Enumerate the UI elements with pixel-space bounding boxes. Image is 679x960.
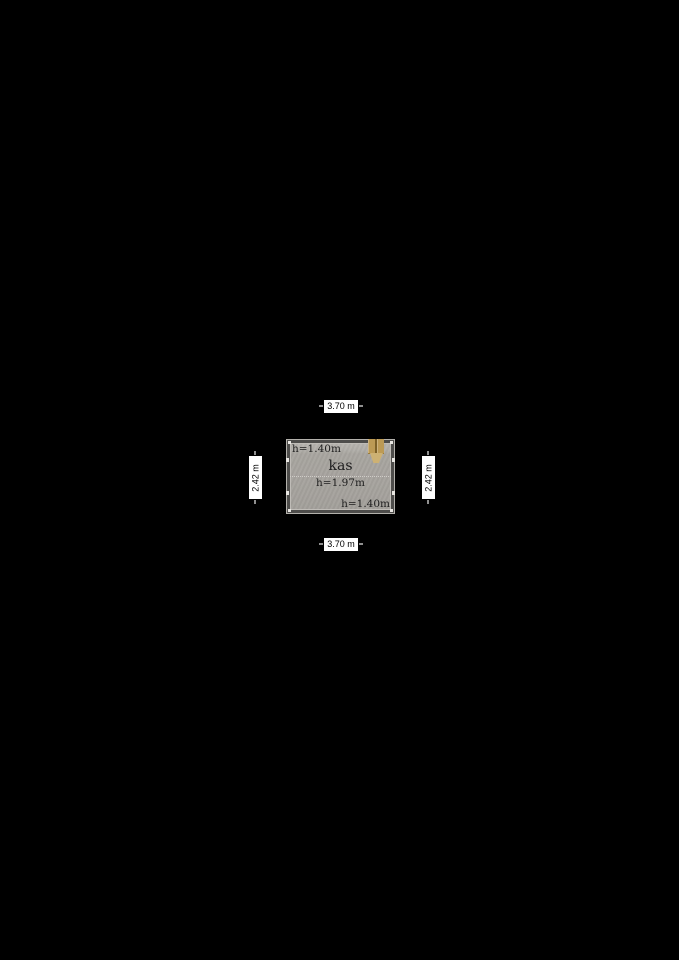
wall-tick bbox=[390, 441, 393, 444]
wall-tick bbox=[286, 458, 289, 462]
ridge-height-label: h=1.97m bbox=[290, 477, 391, 489]
door-leaf-icon bbox=[377, 439, 384, 454]
dimension-label-left: 2.42 m bbox=[249, 456, 262, 499]
dimension-label-bottom: 3.70 m bbox=[324, 538, 358, 551]
wall-tick bbox=[392, 491, 395, 495]
eave-height-label-top: h=1.40m bbox=[292, 443, 341, 455]
door-swing bbox=[370, 453, 383, 463]
wall-tick bbox=[288, 509, 291, 512]
door-gap bbox=[375, 439, 377, 454]
dimension-label-right-text: 2.42 m bbox=[422, 456, 435, 499]
dimension-label-left-text: 2.42 m bbox=[249, 456, 262, 499]
wall-tick bbox=[390, 509, 393, 512]
floor-plan-page: 3.70 m 3.70 m 2.42 m 2.42 m h=1.40m kas … bbox=[0, 0, 679, 960]
wall-tick bbox=[392, 458, 395, 462]
greenhouse-room: h=1.40m kas h=1.97m h=1.40m bbox=[287, 440, 394, 513]
eave-height-label-bottom: h=1.40m bbox=[341, 498, 390, 510]
door-icon bbox=[367, 439, 386, 463]
dimension-label-right: 2.42 m bbox=[422, 456, 435, 499]
wall-tick bbox=[288, 441, 291, 444]
dimension-label-top: 3.70 m bbox=[324, 400, 358, 413]
door-leaf-icon bbox=[368, 439, 375, 454]
wall-tick bbox=[286, 491, 289, 495]
